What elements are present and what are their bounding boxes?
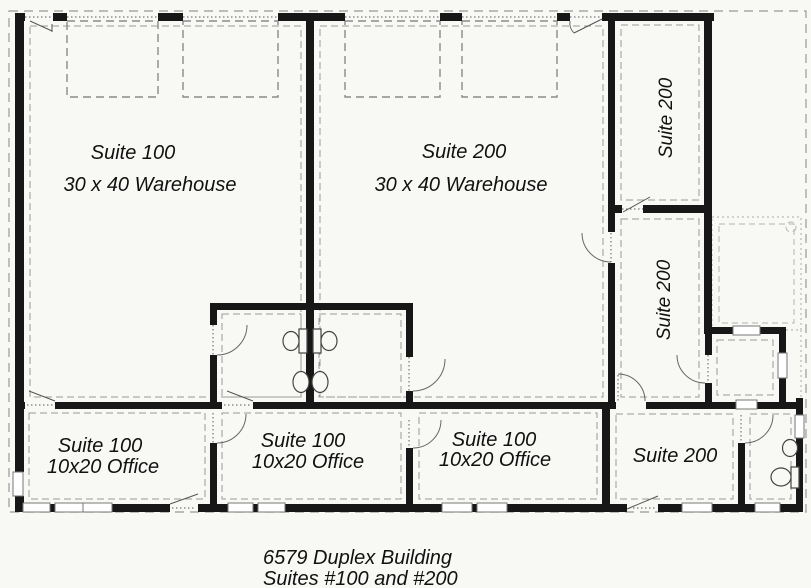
toilet [771, 468, 791, 486]
entry-room-outline [717, 340, 773, 395]
sink [783, 440, 798, 457]
warehouse-100-size: 30 x 40 Warehouse [63, 174, 236, 196]
overhead-door [462, 21, 557, 97]
window [477, 503, 507, 512]
warehouse-100-title: Suite 100 [91, 142, 176, 164]
office1-title: Suite 100 [58, 435, 143, 457]
toilet [321, 332, 337, 351]
warehouse-200-outline [320, 26, 603, 397]
door-swing [582, 233, 611, 262]
caption-line2: Suites #100 and #200 [263, 568, 458, 588]
toilet-tank [791, 467, 799, 488]
office3-size: 10x20 Office [439, 449, 551, 471]
suite200-lower-room-label: Suite 200 [654, 259, 675, 340]
window [442, 503, 472, 512]
window [733, 326, 760, 335]
door-leaf [627, 496, 658, 509]
toilet-tank [299, 329, 307, 353]
warehouse-100-outline [30, 26, 301, 397]
sink [293, 372, 309, 393]
patio [712, 217, 801, 398]
window [755, 503, 780, 512]
window [228, 503, 253, 512]
restroom-right-outline [319, 314, 401, 397]
overhead-door [345, 21, 440, 97]
window [795, 415, 804, 438]
office2-size: 10x20 Office [252, 451, 364, 473]
office2-title: Suite 100 [261, 430, 346, 452]
overhead-door [67, 21, 158, 97]
door-swing [217, 414, 246, 443]
door-leaf [29, 391, 55, 401]
caption-line1: 6579 Duplex Building [263, 547, 452, 569]
overhead-door [183, 21, 278, 97]
window [736, 400, 757, 409]
warehouse-200-title: Suite 200 [422, 141, 507, 163]
window [778, 353, 787, 378]
door-swing [677, 355, 705, 383]
sink [312, 372, 328, 393]
toilet-tank [313, 329, 321, 353]
door-swing [413, 420, 441, 448]
door-swing [413, 359, 445, 391]
door-leaf [227, 391, 253, 401]
restroom-left-outline [222, 314, 301, 397]
office3-title: Suite 100 [452, 429, 537, 451]
suite200-office-title: Suite 200 [633, 445, 718, 467]
window [258, 503, 285, 512]
floor-plan-page: Suite 100 30 x 40 Warehouse Suite 200 30… [0, 0, 811, 588]
window [23, 503, 50, 512]
window [682, 503, 712, 512]
floor-plan-drawing: Suite 100 30 x 40 Warehouse Suite 200 30… [0, 0, 811, 588]
office1-size: 10x20 Office [47, 456, 159, 478]
warehouse-200-size: 30 x 40 Warehouse [374, 174, 547, 196]
toilet [283, 332, 299, 351]
door-swing [745, 415, 773, 443]
window [13, 472, 23, 496]
suite200-upper-room-label: Suite 200 [656, 77, 677, 158]
